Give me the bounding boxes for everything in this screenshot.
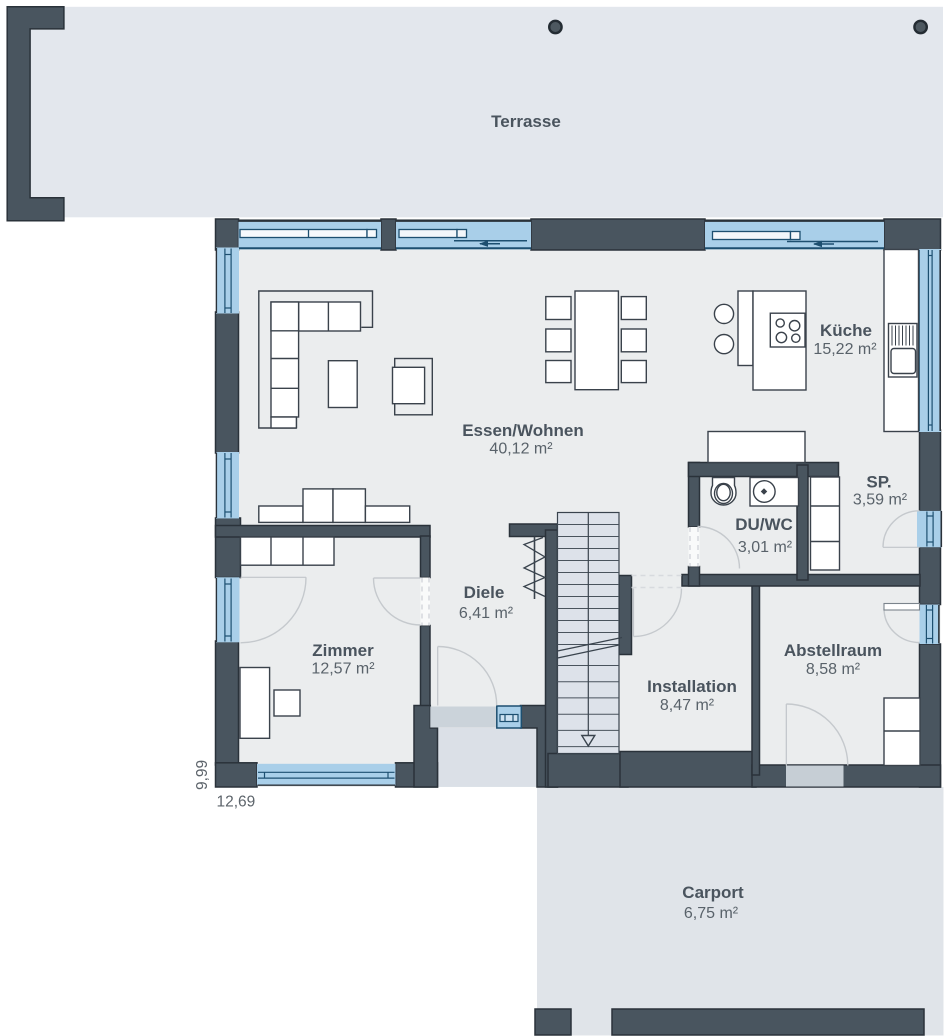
svg-text:15,22 m²: 15,22 m²: [813, 341, 877, 358]
svg-text:Küche: Küche: [820, 321, 872, 340]
svg-text:3,01 m²: 3,01 m²: [738, 539, 793, 556]
svg-text:40,12 m²: 40,12 m²: [489, 441, 553, 458]
svg-text:SP.: SP.: [866, 473, 891, 492]
svg-text:Essen/Wohnen: Essen/Wohnen: [462, 421, 584, 440]
svg-text:12,57 m²: 12,57 m²: [311, 661, 375, 678]
svg-text:3,59 m²: 3,59 m²: [853, 492, 908, 509]
svg-text:Terrasse: Terrasse: [491, 112, 561, 131]
svg-text:Installation: Installation: [647, 677, 737, 696]
svg-text:Diele: Diele: [464, 583, 505, 602]
svg-text:6,41 m²: 6,41 m²: [459, 605, 514, 622]
svg-text:6,75 m²: 6,75 m²: [684, 905, 739, 922]
svg-text:Abstellraum: Abstellraum: [784, 641, 882, 660]
svg-text:Carport: Carport: [682, 883, 744, 902]
svg-text:12,69: 12,69: [217, 794, 256, 811]
svg-text:Zimmer: Zimmer: [312, 641, 374, 660]
svg-text:8,47 m²: 8,47 m²: [660, 697, 715, 714]
svg-text:8,58 m²: 8,58 m²: [806, 661, 861, 678]
svg-text:DU/WC: DU/WC: [735, 515, 793, 534]
svg-text:9,99: 9,99: [194, 760, 211, 790]
